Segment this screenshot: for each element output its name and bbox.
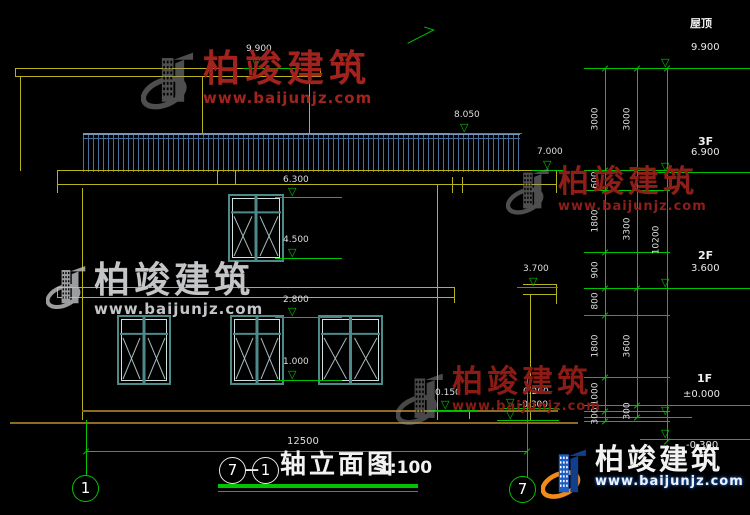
- elevation-value: -0.300: [519, 401, 548, 410]
- storey-elevation-value: -0.300: [686, 441, 718, 451]
- dim-extension-line: [584, 288, 670, 289]
- title-axis-circle-from: 7: [219, 457, 246, 484]
- watermark-url: www.baijunjz.com: [203, 89, 372, 107]
- dim-value: 800: [592, 292, 601, 309]
- dim-extension-line: [584, 377, 670, 378]
- building-line: [15, 68, 16, 77]
- storey-triangle-icon: ▽: [661, 428, 669, 439]
- watermark-name: 柏竣建筑: [94, 262, 263, 300]
- watermark-text: 柏竣建筑 www.baijunjz.com: [203, 50, 372, 107]
- dim-value: 900: [592, 261, 601, 278]
- building-line: [217, 171, 218, 184]
- watermark: 柏竣建筑 www.baijunjz.com: [541, 444, 744, 508]
- elevation-level-line: [275, 258, 342, 259]
- elevation-value: 8.050: [454, 111, 480, 120]
- building-line: [57, 287, 58, 298]
- storey-level-line: [640, 68, 750, 69]
- dim-value: 300: [624, 402, 633, 419]
- storey-label: 屋顶: [690, 18, 712, 29]
- title-axis-circle-to: 1: [252, 457, 279, 484]
- watermark: 柏竣建筑 www.baijunjz.com: [46, 262, 263, 318]
- dim-value: 3300: [624, 218, 633, 241]
- watermark-name: 柏竣建筑: [203, 50, 372, 89]
- dim-extension-line: [584, 190, 670, 191]
- railing-mid-rail: [83, 138, 520, 139]
- dim-value: 1800: [592, 335, 601, 358]
- elevation-level-line: [517, 287, 558, 288]
- axis-line-right: [527, 373, 528, 477]
- elevation-triangle-icon: ▽: [288, 247, 296, 258]
- window: [228, 194, 284, 262]
- elevation-value: 0.150: [435, 389, 461, 398]
- dim-extension-line: [584, 315, 670, 316]
- watermark-text: 柏竣建筑 www.baijunjz.com: [94, 262, 263, 318]
- dim-extension-line: [584, 68, 642, 69]
- dim-value: 1800: [592, 210, 601, 233]
- window: [117, 315, 171, 385]
- elevation-value: 2.800: [283, 296, 309, 305]
- building-line: [454, 287, 455, 303]
- elevation-value: 7.000: [537, 148, 563, 157]
- axis-bubble-left: 1: [72, 475, 99, 502]
- storey-elevation-value: 6.900: [691, 148, 720, 158]
- elevation-triangle-icon: ▽: [529, 276, 537, 287]
- window: [230, 315, 284, 385]
- elevation-triangle-icon: ▽: [506, 409, 514, 420]
- building-line: [20, 77, 21, 171]
- elevation-triangle-icon: ▽: [441, 399, 449, 410]
- dim-chain-line: [605, 68, 606, 421]
- storey-elevation-value: 9.900: [691, 43, 720, 53]
- watermark-logo-icon: [541, 444, 589, 508]
- building-line: [57, 170, 557, 171]
- width-dim-value: 12500: [287, 437, 319, 447]
- storey-level-line: [640, 172, 750, 173]
- building-line: [57, 170, 58, 193]
- building-line: [15, 76, 321, 77]
- dim-chain-line: [667, 68, 668, 441]
- watermark-url: www.baijunjz.com: [595, 474, 744, 490]
- elevation-level-line: [275, 197, 342, 198]
- title-underline-thin: [218, 491, 418, 492]
- watermark-url: www.baijunjz.com: [558, 199, 707, 215]
- elevation-value: 6.300: [283, 176, 309, 185]
- window: [318, 315, 383, 385]
- building-line: [452, 177, 453, 193]
- dim-value: 1000: [592, 383, 601, 406]
- title-underline-thick: [218, 484, 418, 488]
- watermark: 柏竣建筑 www.baijunjz.com: [396, 366, 601, 436]
- storey-label: 1F: [697, 373, 712, 384]
- building-line: [309, 77, 310, 133]
- watermark-logo-icon: [506, 166, 552, 220]
- elevation-triangle-icon: ▽: [288, 306, 296, 317]
- dim-value: 3000: [592, 108, 601, 131]
- watermark-text: 柏竣建筑 www.baijunjz.com: [595, 444, 744, 490]
- storey-elevation-value: ±0.000: [683, 390, 720, 400]
- dim-value: 3600: [624, 335, 633, 358]
- building-line: [437, 185, 438, 420]
- title-axis-from: 7: [228, 463, 238, 478]
- building-line: [523, 294, 557, 295]
- watermark-logo-icon: [141, 50, 197, 116]
- building-line: [556, 170, 557, 193]
- elevation-value: 1.000: [283, 358, 309, 367]
- elevation-triangle-icon: ▽: [506, 397, 514, 408]
- storey-elevation-value: 3.600: [691, 264, 720, 274]
- elevation-triangle-icon: ▽: [252, 57, 260, 68]
- elevation-value: 9.900: [246, 45, 272, 54]
- elevation-triangle-icon: ▽: [543, 159, 551, 170]
- site-ground-line: [10, 422, 578, 424]
- building-line: [462, 177, 463, 193]
- lightning-rod-line: [407, 29, 434, 44]
- elevation-value: 3.700: [523, 265, 549, 274]
- lightning-rod-tip: [424, 26, 434, 30]
- watermark: 柏竣建筑 www.baijunjz.com: [506, 166, 707, 220]
- floor-ground-line: [82, 410, 558, 412]
- elevation-level-line: [275, 317, 342, 318]
- axis-bubble-right-number: 7: [518, 482, 528, 497]
- storey-label: 3F: [698, 136, 713, 147]
- dim-value: 300: [592, 407, 601, 424]
- elevation-level-line: [429, 410, 477, 411]
- title-axis-to: 1: [261, 463, 271, 478]
- building-line: [57, 297, 455, 298]
- axis-line-left: [86, 420, 87, 476]
- building-line: [235, 171, 236, 184]
- elevation-level-line: [275, 380, 342, 381]
- building-line: [320, 68, 321, 77]
- elevation-triangle-icon: ▽: [288, 369, 296, 380]
- cad-elevation-drawing: ▽9.900▽8.050▽7.000▽6.300▽4.500▽3.700▽2.8…: [0, 0, 750, 515]
- dim-chain-line: [637, 68, 638, 417]
- drawing-scale: 1:100: [378, 460, 432, 477]
- building-line: [57, 287, 455, 288]
- building-line: [82, 188, 83, 420]
- watermark-name: 柏竣建筑: [595, 444, 744, 474]
- elevation-triangle-icon: ▽: [460, 122, 468, 133]
- watermark-logo-icon: [396, 366, 446, 436]
- dim-total-height: 10200: [653, 226, 662, 255]
- dim-value: 600: [592, 171, 601, 188]
- storey-label: 2F: [698, 250, 713, 261]
- storey-triangle-icon: ▽: [661, 277, 669, 288]
- elevation-triangle-icon: ▽: [288, 186, 296, 197]
- dim-value: 3000: [624, 108, 633, 131]
- building-line: [202, 77, 203, 133]
- axis-bubble-left-number: 1: [81, 481, 91, 496]
- axis-bubble-right: 7: [509, 476, 536, 503]
- elevation-value: 4.500: [283, 236, 309, 245]
